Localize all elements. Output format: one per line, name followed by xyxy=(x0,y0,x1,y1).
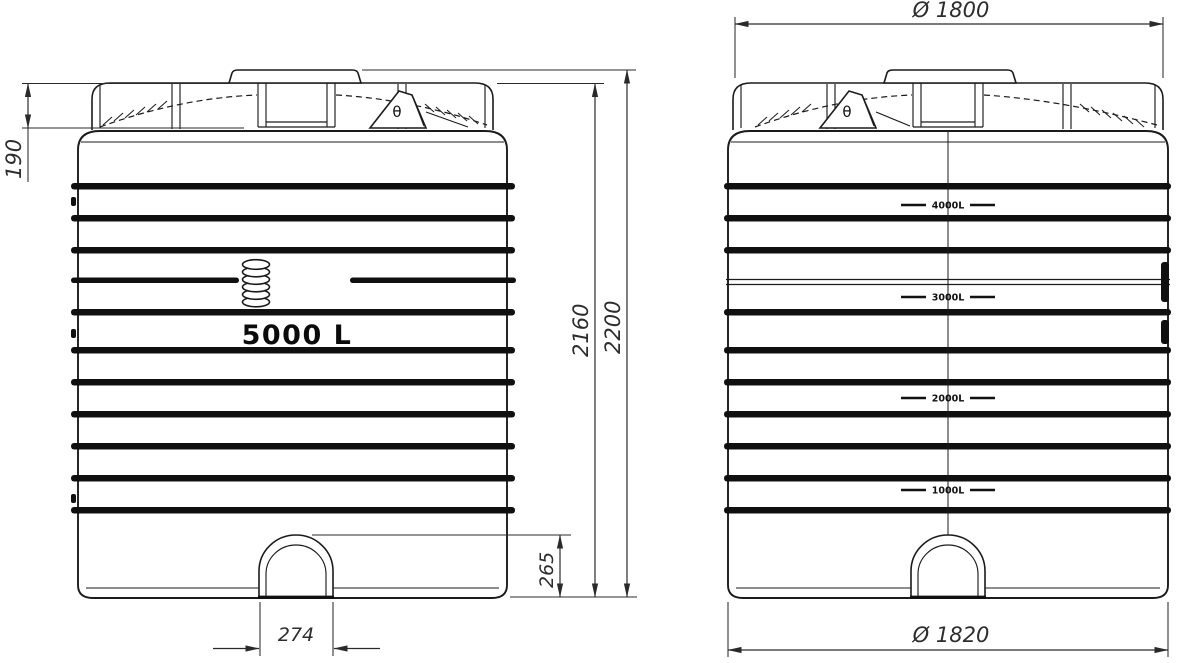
dim-label-274: 274 xyxy=(278,624,314,646)
side-rim xyxy=(733,83,1163,130)
dimension-bottom-diameter: Ø 1820 xyxy=(728,602,1168,657)
side-vent-symbol: θ xyxy=(842,103,851,121)
dim-label-1800: Ø 1800 xyxy=(912,0,990,22)
dimension-outlet-width: 274 xyxy=(213,602,380,656)
dim-label-2200: 2200 xyxy=(601,301,625,354)
svg-text:3000L: 3000L xyxy=(932,293,965,304)
front-lid-cap xyxy=(229,70,361,83)
dim-label-265: 265 xyxy=(536,552,558,588)
front-vent-symbol: θ xyxy=(392,103,401,121)
front-threaded-fitting xyxy=(243,260,270,307)
svg-text:2000L: 2000L xyxy=(932,394,965,405)
capacity-label: 5000 L xyxy=(242,320,353,351)
front-view: θ xyxy=(71,70,516,598)
dim-label-1820: Ø 1820 xyxy=(912,623,990,647)
dim-label-190: 190 xyxy=(2,139,26,179)
tank-technical-drawing: θ xyxy=(0,0,1200,663)
front-rim xyxy=(92,83,493,130)
side-view: θ xyxy=(724,70,1171,598)
drawing-canvas: θ xyxy=(0,0,1200,663)
svg-text:1000L: 1000L xyxy=(932,486,965,497)
side-lid-cap xyxy=(884,70,1016,83)
dimension-top-diameter: Ø 1800 xyxy=(735,0,1163,78)
dim-label-2160: 2160 xyxy=(569,304,593,357)
front-body xyxy=(78,131,507,598)
svg-text:4000L: 4000L xyxy=(932,201,965,212)
